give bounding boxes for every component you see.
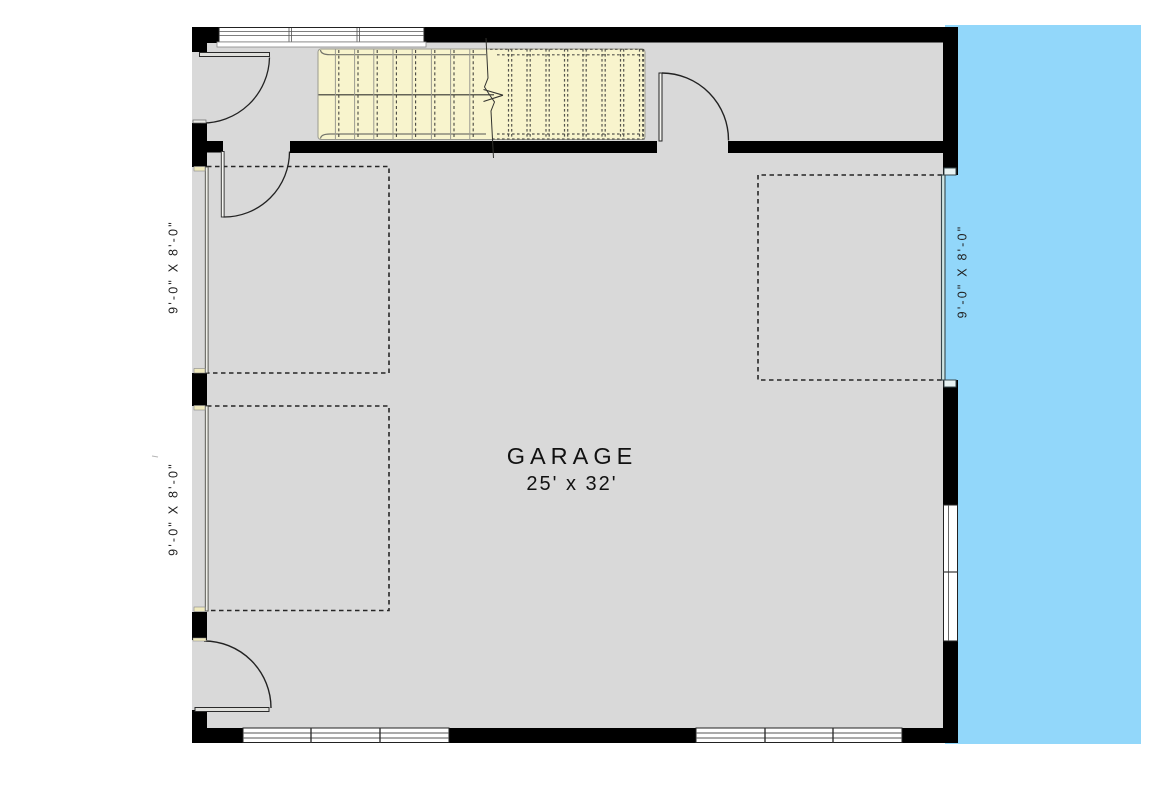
svg-text:9'-0" X 8'-0": 9'-0" X 8'-0" [956, 225, 970, 319]
svg-text:9'-0" X 8'-0": 9'-0" X 8'-0" [167, 220, 181, 314]
svg-text:25' x 32': 25' x 32' [526, 473, 617, 495]
svg-text:9'-0" X 8'-0": 9'-0" X 8'-0" [167, 462, 181, 556]
svg-text:GARAGE: GARAGE [507, 443, 638, 469]
